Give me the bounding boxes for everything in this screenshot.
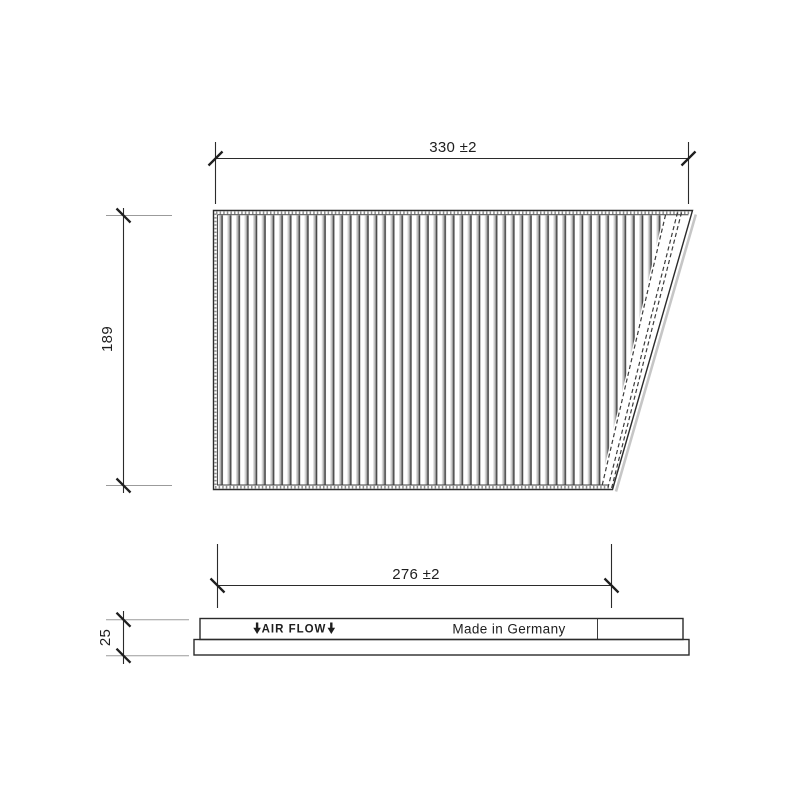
filter-technical-drawing: 330 ±2 189 276 ±2 AIR FLOW Made in Germa… [0, 0, 800, 800]
side-view-media-strip [194, 640, 689, 656]
pleated-media [218, 215, 663, 484]
air-flow-label: AIR FLOW [262, 624, 327, 636]
dim-label-pack-width: 276 ±2 [392, 566, 440, 583]
dim-overall-width: 330 ±2 [209, 139, 696, 204]
dim-label-overall-height: 189 [99, 326, 116, 352]
dim-label-overall-width: 330 ±2 [429, 139, 477, 156]
dim-label-thickness: 25 [97, 629, 114, 646]
filter-side-view: AIR FLOW Made in Germany [194, 619, 689, 656]
dim-pack-width: 276 ±2 [211, 544, 619, 608]
drawing-canvas: 330 ±2 189 276 ±2 AIR FLOW Made in Germa… [0, 0, 800, 800]
made-in-germany-label: Made in Germany [452, 622, 565, 637]
dim-thickness: 25 [97, 611, 189, 664]
air-flow-down-arrow-icon [253, 623, 261, 635]
air-flow-down-arrow-icon [328, 623, 336, 635]
dim-overall-height: 189 [99, 208, 172, 493]
filter-top-view [214, 211, 696, 492]
